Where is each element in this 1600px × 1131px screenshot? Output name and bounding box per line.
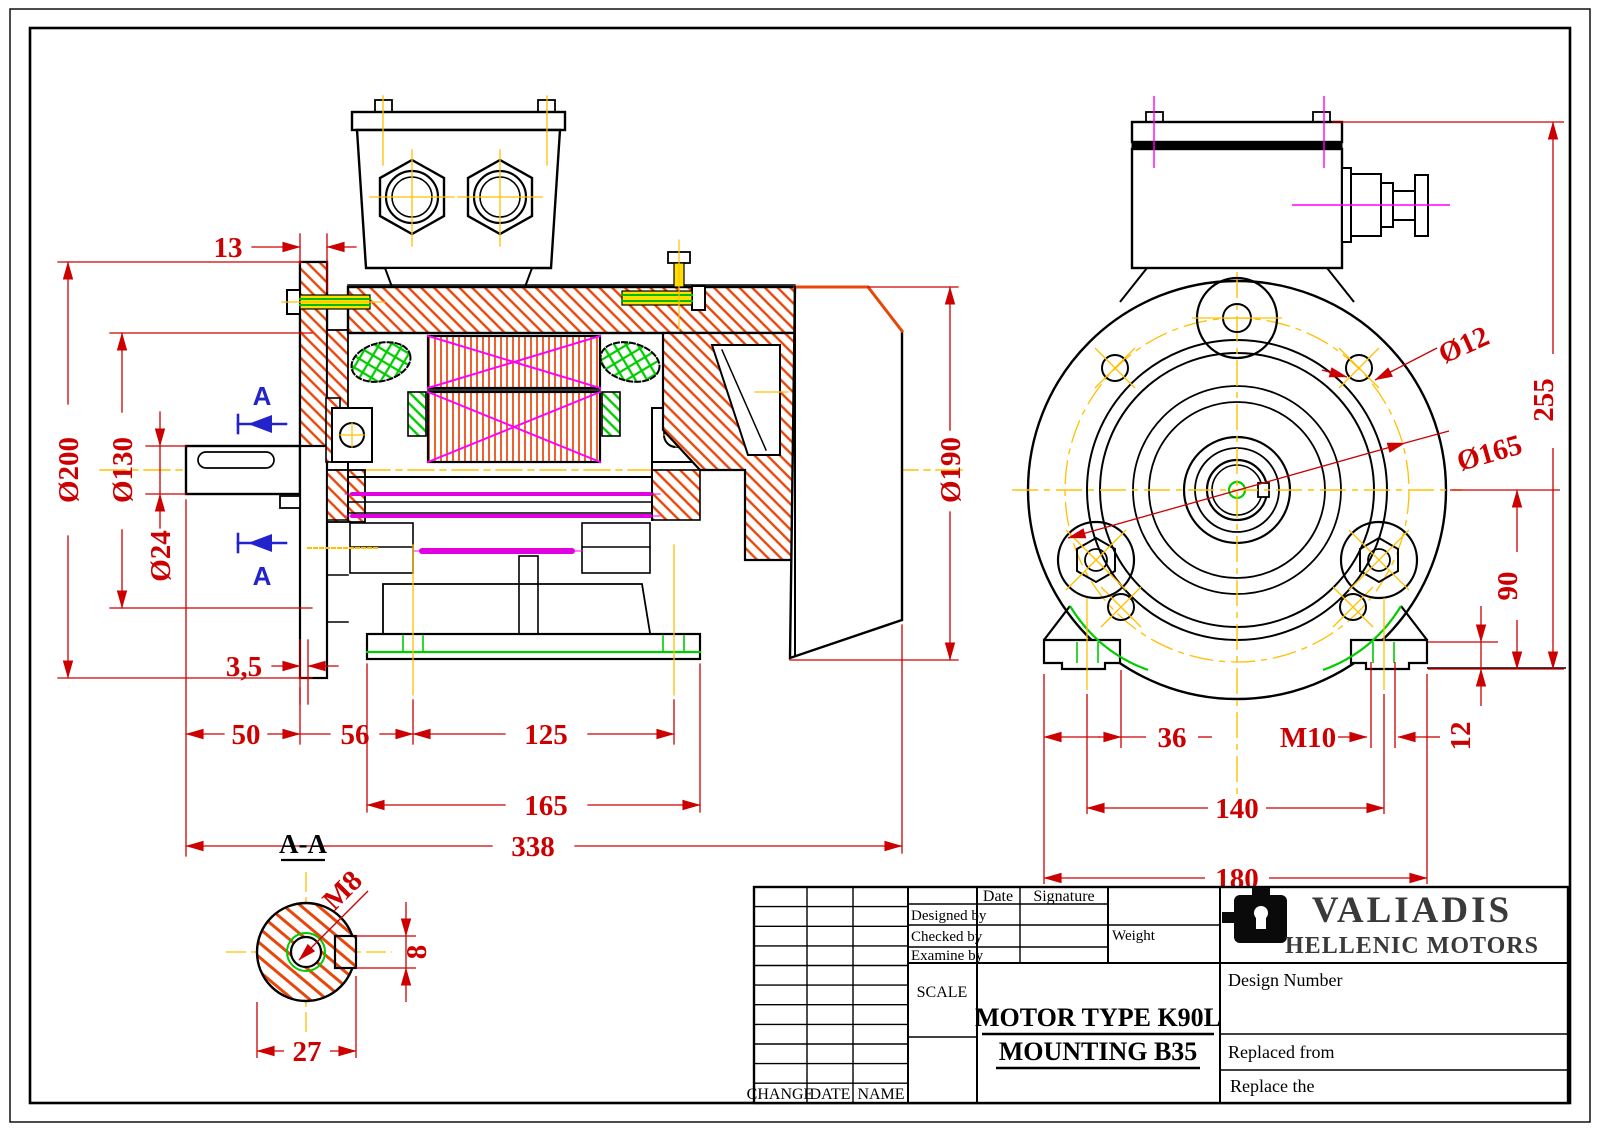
bolt-hole (1101, 587, 1141, 627)
side-view: A A (53, 96, 967, 863)
title-block: Designed by Checked by Examine by Date S… (747, 887, 1568, 1103)
dim-box-offset: 13 (214, 232, 243, 264)
dim-fan-od: Ø190 (935, 437, 967, 503)
dim-flange-gap: 3,5 (226, 651, 262, 683)
bolt-hole (1095, 348, 1135, 388)
label-replaced-from: Replaced from (1228, 1042, 1334, 1062)
terminal-box-front (1120, 96, 1354, 302)
dim-foot-cc: 140 (1215, 793, 1259, 825)
dim-foot-thickness: 12 (1445, 722, 1477, 751)
terminal-box-side (352, 96, 565, 287)
label-examine-by: Examine by (911, 948, 984, 964)
dim-shaft-len: 50 (232, 719, 261, 751)
dim-key-width: 27 (293, 1036, 322, 1068)
dim-bolt-circle: Ø165 (1453, 429, 1525, 478)
dim-flange-hole: Ø12 (1434, 320, 1494, 370)
dim-base-len: 165 (524, 790, 568, 822)
keyway-slot (198, 452, 274, 468)
dim-shaft-height: 90 (1492, 572, 1524, 601)
label-date-col: DATE (810, 1086, 851, 1103)
front-dimension-labels: Ø12 Ø165 255 90 12 36 M10 140 180 (1158, 320, 1561, 895)
section-title: A-A (279, 829, 327, 859)
label-design-number: Design Number (1228, 970, 1342, 990)
dim-125: 125 (524, 719, 568, 751)
front-view: Ø12 Ø165 255 90 12 36 M10 140 180 (1012, 96, 1566, 895)
fan-cover (790, 287, 902, 658)
dim-total-len: 338 (511, 831, 555, 863)
company-name: VALIADIS (1312, 890, 1512, 931)
bearing-left (326, 398, 372, 462)
label-weight: Weight (1112, 928, 1156, 944)
bolt-hole (1333, 587, 1373, 627)
dim-total-height: 255 (1528, 378, 1560, 422)
housing-section (348, 285, 795, 333)
motor-drawing-canvas: A A (0, 0, 1600, 1131)
label-scale: SCALE (917, 984, 968, 1001)
label-checked-by: Checked by (911, 929, 983, 945)
shaft (186, 446, 300, 494)
label-designed-by: Designed by (911, 908, 987, 924)
end-shield-right (663, 333, 795, 560)
key-section (335, 936, 356, 968)
cad-drawing-page: A A (0, 0, 1600, 1131)
label-signature: Signature (1033, 888, 1094, 905)
label-replace-the: Replace the (1230, 1076, 1314, 1096)
drawing-title-line2: MOUNTING B35 (999, 1037, 1198, 1066)
stator-winding (428, 336, 600, 462)
cut-label-bottom: A (253, 561, 272, 591)
front-feet (1044, 598, 1566, 690)
dim-flange-od: Ø200 (53, 437, 85, 503)
label-date: Date (983, 888, 1013, 905)
bolt-hole (1339, 348, 1379, 388)
dim-key-height: 8 (401, 945, 433, 960)
section-aa: A-A M8 8 27 (226, 829, 433, 1068)
company-subtitle: HELLENIC MOTORS (1285, 933, 1539, 959)
cut-label-top: A (253, 381, 272, 411)
dim-56: 56 (341, 719, 370, 751)
drawing-title-line1: MOTOR TYPE K90L (975, 1003, 1221, 1032)
label-name-col: NAME (857, 1086, 904, 1103)
dim-foot-edge: 36 (1158, 722, 1187, 754)
label-change: CHANGE (747, 1086, 814, 1103)
dim-spigot-od: Ø130 (107, 437, 139, 503)
hex-boss-left (1058, 522, 1134, 598)
dim-shaft-od: Ø24 (145, 530, 177, 582)
dim-foot-thread: M10 (1280, 722, 1336, 754)
